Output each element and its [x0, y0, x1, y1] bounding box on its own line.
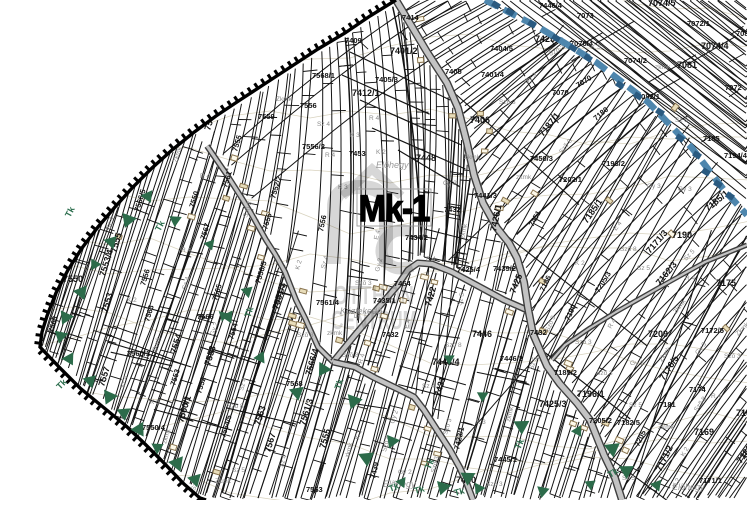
- svg-text:Gy 2: Gy 2: [398, 469, 412, 476]
- svg-text:7185: 7185: [703, 134, 720, 143]
- svg-text:K 2: K 2: [127, 297, 137, 304]
- svg-text:Zkmk: Zkmk: [464, 154, 481, 161]
- svg-text:K 3: K 3: [476, 419, 486, 426]
- svg-text:Szõ 8: Szõ 8: [445, 342, 462, 349]
- svg-text:Sz 5: Sz 5: [622, 475, 635, 482]
- svg-text:7568: 7568: [286, 379, 303, 388]
- svg-text:R 4: R 4: [181, 247, 192, 254]
- svg-text:7074/4: 7074/4: [701, 41, 729, 51]
- svg-text:Szõ 3: Szõ 3: [724, 353, 741, 360]
- svg-text:7560/1: 7560/1: [127, 349, 150, 358]
- svg-text:K 3: K 3: [591, 44, 601, 51]
- svg-text:7559: 7559: [258, 112, 275, 121]
- svg-text:R 4: R 4: [200, 173, 211, 180]
- svg-text:R 4: R 4: [685, 275, 696, 282]
- svg-text:E 4: E 4: [426, 256, 436, 263]
- svg-text:7556: 7556: [300, 101, 317, 110]
- svg-text:7070: 7070: [552, 88, 569, 97]
- svg-text:Szõ 8: Szõ 8: [227, 403, 244, 410]
- svg-text:R 4: R 4: [711, 393, 722, 400]
- svg-text:7194/4: 7194/4: [724, 151, 747, 160]
- svg-text:7432: 7432: [444, 205, 461, 214]
- svg-text:7073: 7073: [577, 11, 594, 20]
- svg-text:7182/5: 7182/5: [617, 418, 640, 427]
- svg-text:Gy 3: Gy 3: [647, 183, 661, 190]
- svg-text:7404/5: 7404/5: [490, 44, 513, 53]
- svg-text:Szõ 8: Szõ 8: [620, 246, 637, 253]
- svg-text:Szõ 3: Szõ 3: [575, 339, 592, 346]
- svg-text:7406: 7406: [470, 115, 490, 125]
- svg-text:7169: 7169: [694, 427, 714, 437]
- svg-text:7185/2: 7185/2: [554, 368, 577, 377]
- svg-text:7556/2: 7556/2: [302, 142, 325, 151]
- svg-text:Sz 5: Sz 5: [629, 402, 642, 409]
- svg-text:7414: 7414: [402, 13, 420, 22]
- svg-text:Zkmk: Zkmk: [658, 424, 675, 431]
- svg-text:7074/5: 7074/5: [648, 0, 676, 8]
- svg-text:7175: 7175: [716, 278, 736, 288]
- svg-text:7446: 7446: [472, 329, 492, 339]
- svg-text:Sz 5: Sz 5: [675, 117, 688, 124]
- svg-text:7205/2: 7205/2: [589, 416, 612, 425]
- svg-text:K 3: K 3: [350, 132, 360, 139]
- svg-text:7190: 7190: [672, 230, 692, 240]
- svg-text:Gy 2: Gy 2: [630, 360, 644, 367]
- svg-text:Sz 4: Sz 4: [317, 121, 330, 128]
- svg-text:Zkmk: Zkmk: [276, 96, 293, 103]
- svg-text:K 2: K 2: [575, 260, 585, 267]
- svg-text:Szõ 3: Szõ 3: [297, 332, 314, 339]
- svg-text:7401/2: 7401/2: [390, 46, 418, 56]
- svg-text:7566: 7566: [197, 312, 214, 321]
- svg-text:7405: 7405: [445, 67, 462, 76]
- svg-text:7563: 7563: [306, 485, 323, 494]
- svg-text:7450/3: 7450/3: [530, 154, 553, 163]
- svg-text:7441/3: 7441/3: [474, 191, 497, 200]
- svg-text:Zkmk: Zkmk: [215, 478, 232, 485]
- svg-text:Szõ 8: Szõ 8: [342, 352, 359, 359]
- svg-text:7405/3: 7405/3: [375, 75, 398, 84]
- svg-text:7202/1: 7202/1: [559, 175, 582, 184]
- svg-text:7439/2: 7439/2: [493, 264, 516, 273]
- svg-text:7193/2: 7193/2: [602, 159, 625, 168]
- svg-text:zkmk: zkmk: [516, 174, 532, 181]
- svg-text:7172/5: 7172/5: [701, 326, 724, 335]
- svg-text:Mk-1: Mk-1: [359, 188, 430, 229]
- svg-text:7425/3: 7425/3: [539, 399, 567, 409]
- svg-text:Elõhegy: Elõhegy: [376, 160, 409, 170]
- svg-text:7163: 7163: [736, 408, 747, 418]
- svg-text:7425/4: 7425/4: [457, 265, 481, 274]
- svg-text:Szõ 3: Szõ 3: [486, 481, 503, 488]
- svg-text:Sz 5: Sz 5: [637, 265, 650, 272]
- svg-text:R 4: R 4: [325, 152, 336, 159]
- svg-text:7412/1: 7412/1: [352, 88, 380, 98]
- svg-text:Gy 3: Gy 3: [678, 186, 692, 193]
- svg-text:7568/1: 7568/1: [312, 71, 335, 80]
- svg-text:7081/1: 7081/1: [736, 29, 747, 38]
- svg-text:K 3: K 3: [150, 399, 160, 406]
- svg-text:Elõhegy: Elõhegy: [672, 482, 705, 492]
- svg-text:R 4: R 4: [369, 115, 380, 122]
- svg-text:Szõ 3: Szõ 3: [499, 99, 516, 106]
- svg-text:Sz 5: Sz 5: [232, 467, 245, 474]
- svg-text:7453: 7453: [349, 149, 366, 158]
- svg-text:7072/1: 7072/1: [687, 19, 710, 28]
- svg-text:7196/1: 7196/1: [577, 389, 605, 399]
- svg-text:7072: 7072: [725, 83, 742, 92]
- svg-text:7174: 7174: [689, 385, 707, 394]
- svg-text:zkmk: zkmk: [655, 64, 671, 71]
- svg-text:7446/2: 7446/2: [500, 354, 523, 363]
- svg-text:7409: 7409: [345, 36, 362, 45]
- svg-text:7445/1: 7445/1: [494, 455, 517, 464]
- svg-text:Szõ 3: Szõ 3: [596, 370, 613, 377]
- svg-text:7181: 7181: [659, 400, 676, 409]
- svg-text:7448: 7448: [416, 153, 436, 163]
- svg-text:7074/2: 7074/2: [624, 56, 647, 65]
- svg-text:7401/4: 7401/4: [481, 70, 505, 79]
- svg-text:7550/4: 7550/4: [142, 423, 166, 432]
- svg-text:7081: 7081: [677, 60, 697, 70]
- svg-text:7209: 7209: [648, 329, 668, 339]
- svg-text:K 2: K 2: [376, 149, 386, 156]
- svg-text:7446/4: 7446/4: [539, 1, 563, 10]
- svg-text:Gy 2: Gy 2: [443, 180, 457, 187]
- svg-text:CENTRUM: CENTRUM: [331, 305, 417, 335]
- svg-text:Sz 4: Sz 4: [422, 383, 435, 390]
